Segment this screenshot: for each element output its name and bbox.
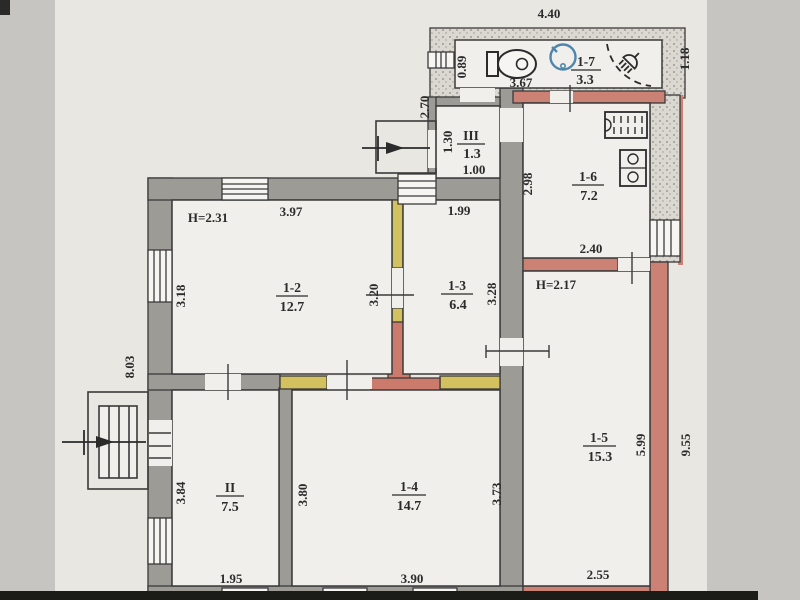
floor-room-1-2 [172, 200, 392, 374]
dim-porch-height: 2.70 [417, 96, 432, 119]
partition-mid-left [280, 376, 327, 389]
window-left-II [148, 518, 172, 564]
chimney-base [371, 378, 440, 391]
room-label-1-5: 1-5 [590, 430, 608, 445]
dim-rII-width: 1.95 [220, 571, 243, 586]
door-vestibule-kitchen [500, 108, 523, 142]
door-1-3-1-5 [500, 338, 523, 366]
room-area-III: 1.3 [463, 147, 481, 162]
room-label-1-4: 1-4 [400, 479, 418, 494]
room-label-1-3: 1-3 [448, 278, 466, 293]
room-area-1-5: 15.3 [588, 450, 613, 465]
dim-kitchen-height: 2.98 [520, 172, 535, 195]
dim-kitchen-width: 2.40 [580, 241, 603, 256]
room-label-1-2: 1-2 [283, 280, 301, 295]
stove-icon [620, 150, 646, 186]
dim-bath-width: 3.67 [510, 75, 533, 90]
door-1-2-1-4 [327, 376, 372, 389]
dim-r13-right: 3.28 [484, 282, 499, 305]
kitchen-top-wall [513, 91, 665, 103]
dim-left-total: 8.03 [122, 355, 137, 378]
dim-vest-width: 1.00 [463, 162, 486, 177]
dim-rII-left: 3.84 [173, 481, 188, 504]
floor-room-1-4 [292, 390, 500, 586]
height-label-1-5: H=2.17 [536, 277, 577, 292]
vent-window-bathroom [428, 52, 454, 68]
door-entry-room-II [148, 420, 172, 466]
window-kitchen-right [650, 220, 680, 256]
room-area-1-3: 6.4 [449, 298, 467, 313]
dim-r14-width: 3.90 [401, 571, 424, 586]
door-vestibule-bathroom [460, 88, 495, 102]
height-label-1-2: H=2.31 [188, 210, 228, 225]
dim-r15-width: 2.55 [587, 567, 610, 582]
dim-vest-height: 1.30 [440, 131, 455, 154]
right-outer-wall-1-5 [650, 262, 668, 598]
partition-mid-right [440, 376, 500, 389]
dim-top-width: 4.40 [538, 6, 561, 21]
room-area-1-2: 12.7 [280, 300, 305, 315]
porch-steps-top [398, 174, 436, 204]
radiator-icon [605, 112, 647, 138]
room-area-II: 7.5 [221, 500, 239, 515]
room-label-1-7: 1-7 [577, 54, 595, 69]
dim-annex-right: 1.18 [677, 47, 692, 70]
room-label-1-6: 1-6 [579, 169, 597, 184]
toilet-icon [487, 50, 536, 78]
dim-r14-left: 3.80 [295, 484, 310, 507]
wall-II-1-4 [279, 388, 292, 598]
dim-r12-left: 3.18 [173, 284, 188, 307]
photo-edge-corner [0, 0, 10, 15]
dim-bath-left: 0.89 [454, 55, 469, 78]
door-1-2-II [205, 374, 241, 390]
room-label-III: III [463, 128, 479, 143]
dim-r12-right: 3.20 [366, 284, 381, 307]
window-top-1-2 [222, 178, 268, 200]
floor-room-1-5 [523, 271, 650, 586]
dim-r15-height: 5.99 [633, 433, 648, 456]
floor-plan-drawing: 1-7 3.3 III 1.3 1-6 7.2 1-2 12.7 1-3 6.4… [0, 0, 800, 600]
door-1-2-1-3 [392, 268, 403, 308]
dim-r13-width: 1.99 [448, 203, 471, 218]
room-area-1-4: 14.7 [397, 499, 422, 514]
dim-r14-right: 3.73 [489, 482, 504, 505]
room-area-1-6: 7.2 [580, 189, 598, 204]
room-label-II: II [225, 480, 236, 495]
window-left-1-2 [148, 250, 172, 302]
kitchen-bottom-wall [523, 258, 618, 271]
dim-r12-width: 3.97 [280, 204, 303, 219]
floor-plan-page: 1-7 3.3 III 1.3 1-6 7.2 1-2 12.7 1-3 6.4… [0, 0, 800, 600]
door-kitchen-1-5 [618, 258, 650, 271]
top-wall-main [148, 178, 520, 200]
room-area-1-7: 3.3 [576, 73, 594, 88]
dim-right-total: 9.55 [678, 433, 693, 456]
photo-edge-bottom [0, 591, 758, 600]
partition-1-2-1-3-upper [392, 200, 403, 268]
